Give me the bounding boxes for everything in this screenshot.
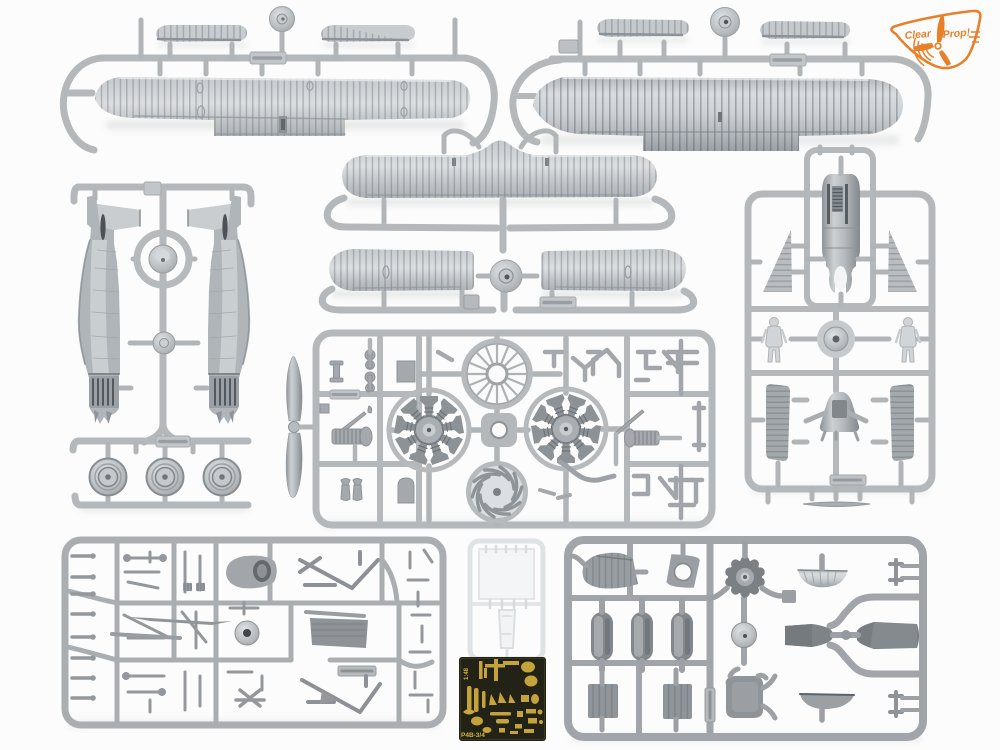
- svg-text:Prop!: Prop!: [942, 27, 971, 41]
- svg-text:P4B-3/4: P4B-3/4: [461, 732, 485, 739]
- svg-text:1:48: 1:48: [464, 667, 470, 680]
- svg-text:Clear: Clear: [904, 28, 932, 42]
